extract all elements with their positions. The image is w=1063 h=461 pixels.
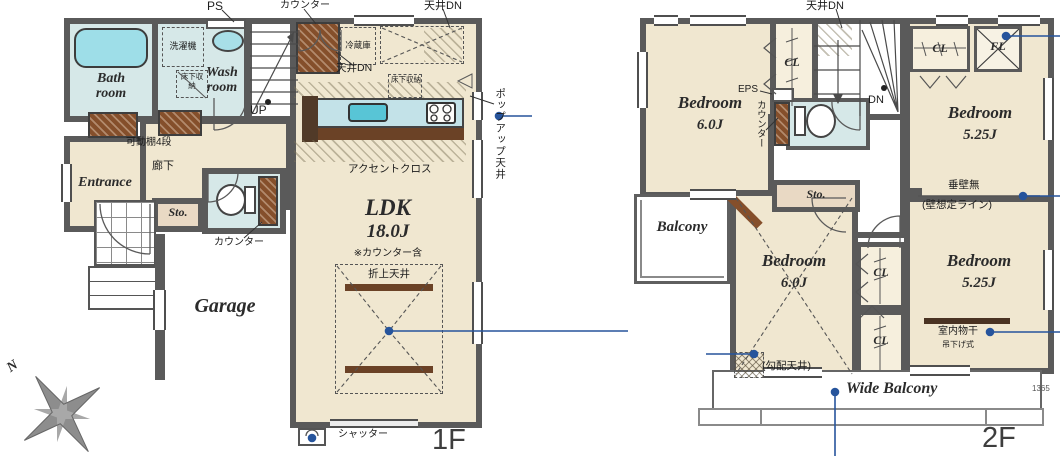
f2-bedroom1-name-label: Bedroom [650, 94, 770, 112]
f2-wall-stub [904, 188, 922, 202]
f2-bedroom2-size-label: 5.25J [918, 128, 1042, 144]
f2-closet3-label: CL [856, 266, 906, 279]
f2-ceiling-dn-hatch [818, 24, 852, 56]
f2-closet2-label: CL [910, 42, 970, 55]
f1-coffered-ceiling-label: 折上天井 [335, 268, 443, 280]
f2-window-left [637, 52, 648, 108]
f1-toilet-bowl [216, 184, 246, 216]
f1-counter-toilet-label: カウンター [214, 237, 264, 249]
f1-entrance-closet [88, 112, 138, 138]
f1-counter-top-label: カウンター [280, 0, 330, 12]
f2-balcony-door-1 [690, 189, 736, 200]
f2-bedroom3-name-label: Bedroom [738, 252, 850, 270]
f1-ceiling-dn-top-label: 天井DN [424, 0, 462, 13]
f1-accent-cloth-label: アクセントクロス [348, 163, 431, 175]
f2-no-hanging-wall-label: 垂壁無 [948, 179, 980, 191]
f1-floor-label: 1F [432, 424, 466, 457]
f1-ps-label: PS [207, 0, 223, 14]
f2-window-right-2 [1043, 250, 1054, 310]
f2-mesh-corner [734, 352, 764, 378]
f2-closet1-label: CL [770, 56, 814, 69]
f2-fixed-light-label: FL [974, 40, 1022, 53]
f1-shutter-label: シャッター [338, 429, 388, 441]
f1-ldk-note-label: ※カウンター含 [338, 248, 438, 260]
f1-window-right-1 [472, 140, 483, 198]
f2-dn-label: DN [868, 94, 884, 107]
f1-popup-ceiling-label: ポップアップ天井 [494, 88, 506, 180]
f2-eps-label: EPS [738, 84, 758, 96]
f1-compass-north-label: N [5, 358, 22, 376]
f1-ps-box [206, 19, 246, 29]
f2-sloped-ceiling-label: (勾配天井) [762, 360, 811, 372]
f2-closet4-label: CL [856, 334, 906, 347]
f1-kitchen-sink [348, 103, 388, 122]
f1-bath-room-label: Bath room [76, 72, 146, 101]
f2-hanging-type-label: 吊下げ式 [942, 340, 974, 349]
f2-window-top-1 [654, 15, 678, 26]
f1-kitchen-end-panel [302, 96, 318, 142]
f1-ldk-name-label: LDK [338, 196, 438, 220]
f2-bedroom2-name-label: Bedroom [918, 104, 1042, 122]
f2-ceiling-dn-label: 天井DN [806, 0, 844, 13]
f2-eps-box [772, 88, 794, 102]
f1-washing-machine: 洗濯機 [162, 27, 204, 67]
f1-kitchen-counter-top [296, 22, 340, 74]
f1-fridge: 冷蔵庫 [340, 27, 376, 65]
f2-indoor-drying-label: 室内物干 [938, 326, 978, 338]
f2-railing-post-1 [760, 410, 762, 424]
f1-kitchen-wood-band [316, 128, 464, 140]
f1-hallway-label: 廊下 [152, 160, 174, 173]
f2-balcony-door-3 [910, 365, 970, 376]
f1-bathtub [74, 28, 148, 68]
f2-bedroom3-size-label: 6.0J [738, 276, 850, 292]
f1-wash-room-label: Wash room [192, 66, 252, 95]
f2-balcony-label: Balcony [638, 220, 726, 236]
f1-movable-shelf-label: 可動棚4段 [126, 137, 172, 149]
f1-ceiling-dn-kitchen-label: 天井DN [336, 62, 372, 74]
f1-ceiling-beam-bottom [345, 366, 433, 373]
f1-garage-window [153, 290, 166, 330]
f2-counter-label: カウンター [754, 100, 765, 148]
f2-balcony-railing [640, 200, 724, 278]
f1-entrance-label: Entrance [64, 176, 146, 191]
f2-assumed-wall-line-label: (壁想定ライン) [922, 199, 992, 211]
f1-basin-sink [212, 30, 244, 52]
f2-window-top-2 [690, 15, 746, 26]
f1-storage-label: Sto. [152, 206, 204, 219]
f2-dimension-label: 1365 [1032, 384, 1050, 393]
f2-bedroom4-size-label: 5.25J [914, 276, 1044, 292]
f1-garage-label: Garage [168, 296, 282, 317]
f1-toilet-counter [258, 176, 278, 226]
f1-movable-shelf [158, 110, 202, 136]
floor-plan-stage: 洗濯機 床下収納 冷蔵庫 床下収納 PS カウンター 天井DN Bath roo… [0, 0, 1063, 461]
f1-window-right-2 [472, 282, 483, 344]
f2-toilet-bowl [806, 104, 836, 138]
f1-washing-machine-label: 洗濯機 [163, 41, 203, 51]
f1-water-heater-box [298, 428, 326, 446]
f2-window-right-1 [1043, 78, 1054, 140]
f1-porch-tiles [94, 200, 156, 266]
f1-porch-steps [88, 266, 158, 310]
f1-stove [426, 102, 456, 124]
f1-underfloor-storage-ldk-label: 床下収納 [391, 76, 421, 85]
f1-ceiling-beam-top [345, 284, 433, 291]
f1-underfloor-storage-ldk: 床下収納 [388, 74, 422, 98]
f2-floor-label: 2F [982, 422, 1016, 455]
f1-shutter-rail [330, 419, 418, 428]
f1-up-label: UP [250, 104, 267, 118]
f2-window-top-4 [998, 15, 1040, 26]
f1-ceiling-dn-hatch [424, 28, 462, 62]
f2-toilet-counter [774, 102, 790, 146]
f2-window-top-3 [936, 15, 968, 26]
f1-toilet-tank [244, 186, 256, 214]
f1-kitchen-hatch-top [294, 82, 466, 98]
f2-wide-balcony-label: Wide Balcony [846, 381, 937, 398]
f2-toilet-tank [794, 106, 806, 136]
f1-kitchen-hatch-bottom [294, 140, 466, 162]
f1-fridge-label: 冷蔵庫 [341, 41, 375, 51]
f1-ldk-size-label: 18.0J [338, 222, 438, 242]
f2-bedroom4-name-label: Bedroom [914, 252, 1044, 270]
f1-window-top [354, 15, 414, 26]
f1-side-door [472, 92, 483, 120]
f2-drying-bar [924, 318, 1010, 324]
f2-storage-label: Sto. [772, 188, 860, 201]
f2-bedroom1-size-label: 6.0J [650, 118, 770, 134]
